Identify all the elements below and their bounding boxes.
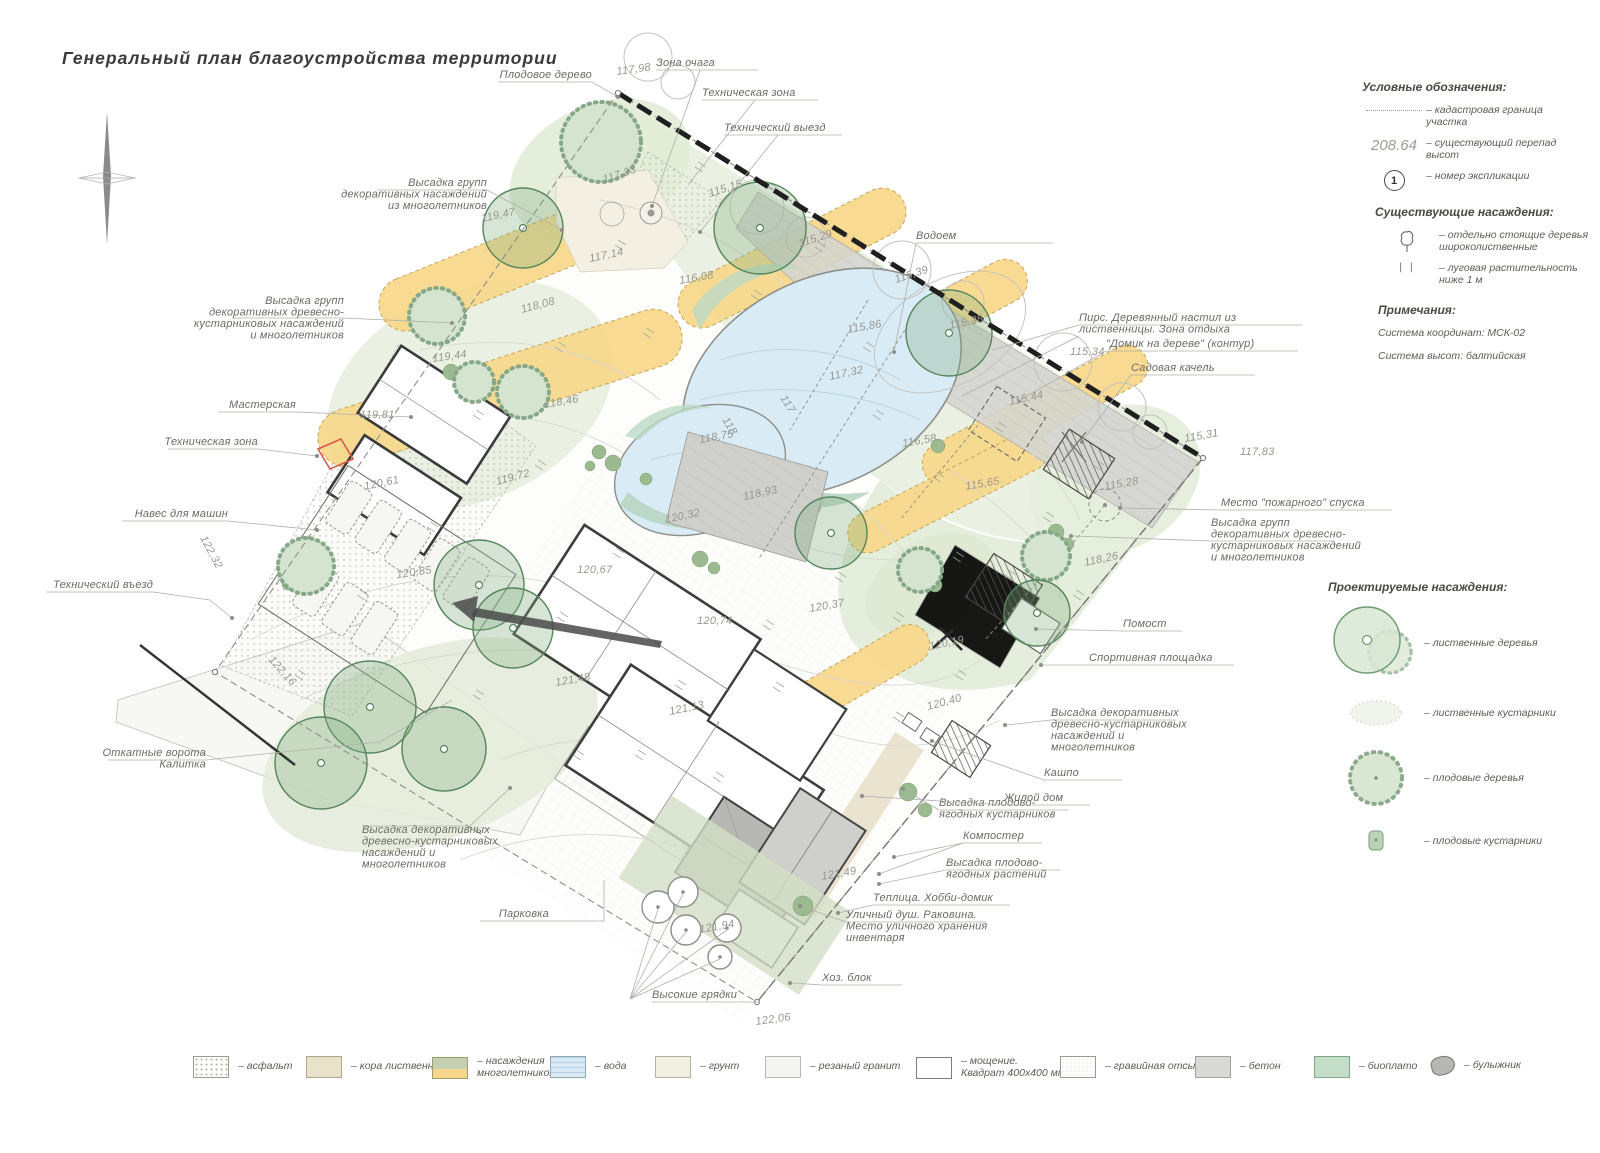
elevation-mark: 117,83	[1240, 446, 1275, 458]
material-swatch-concrete	[1195, 1056, 1231, 1078]
material-label-concrete: – бетон	[1240, 1061, 1281, 1073]
material-swatch-soil	[655, 1056, 691, 1078]
projected-item-1: – лиственные кустарники	[1328, 696, 1593, 730]
annotation-text: Высадка декоративныхдревесно-кустарников…	[362, 824, 498, 871]
existing-item-0: – отдельно стоящие деревья широколиствен…	[1375, 229, 1600, 253]
annotation-text: Плодовое дерево	[500, 69, 592, 81]
elevation-mark: 120,67	[577, 564, 613, 576]
material-item-water: – вода	[550, 1056, 627, 1078]
plan-annotation: Навес для машин	[122, 508, 319, 532]
annotation-text: Парковка	[499, 908, 549, 920]
elevation-mark: 119,81	[360, 409, 395, 421]
material-label-paving: – мощение. Квадрат 400х400 мм	[961, 1056, 1065, 1079]
annotation-text: Теплица. Хобби-домик	[873, 892, 994, 904]
annotation-text: Спортивная площадка	[1089, 652, 1213, 664]
convention-item-1: 208.64– существующий перепад высот	[1362, 137, 1594, 161]
convention-item-0: – кадастровая граница участка	[1362, 104, 1594, 128]
material-label-soil: – грунт	[700, 1061, 739, 1073]
legend-notes: Примечания: Система координат: МСК-02Сис…	[1378, 303, 1588, 373]
material-swatch-granite	[765, 1056, 801, 1078]
material-swatch-perennials	[432, 1057, 468, 1079]
annotation-text: Высокие грядки	[652, 989, 737, 1001]
material-item-boulder: – булыжник	[1431, 1056, 1521, 1075]
material-item-bioplato: – биоплато	[1314, 1056, 1417, 1078]
tree-outline-icon	[1398, 229, 1416, 253]
plan-annotation: Технический въезд	[46, 579, 234, 620]
legend-notes-lines: Система координат: МСК-02Система высот: …	[1378, 327, 1588, 362]
deciduous-shrub-icon	[1345, 696, 1407, 730]
material-swatch-bark	[306, 1056, 342, 1078]
legend-projected-items: – лиственные деревья– лиственные кустарн…	[1328, 604, 1593, 856]
annotation-text: Пирс. Деревянный настил излиственницы. З…	[1078, 312, 1236, 336]
page-title: Генеральный план благоустройства террито…	[62, 48, 558, 69]
material-item-paving: – мощение. Квадрат 400х400 мм	[916, 1056, 1065, 1079]
material-swatch-water	[550, 1056, 586, 1078]
plan-annotation: Высадка декоративныхдревесно-кустарников…	[1003, 707, 1187, 754]
convention-item-1-label: – существующий перепад высот	[1426, 137, 1556, 161]
annotation-text: Техническая зона	[164, 436, 258, 448]
material-label-perennials: – насаждения многолетников	[477, 1056, 555, 1079]
annotation-text: Кашпо	[1044, 767, 1079, 779]
material-item-asphalt: – асфальт	[193, 1056, 293, 1078]
projected-item-3: – плодовые кустарники	[1328, 826, 1593, 856]
annotation-text: Высадка плодово-ягодных растений	[945, 857, 1047, 881]
material-item-perennials: – насаждения многолетников	[432, 1056, 555, 1079]
annotation-text: Высадка декоративныхдревесно-кустарников…	[1051, 707, 1187, 754]
site-plan-canvas: Плодовое деревоЗона очагаТехническая зон…	[0, 0, 1600, 1153]
north-arrow-icon	[78, 112, 136, 244]
explication-number-icon: 1	[1384, 170, 1405, 191]
meadow-bars-icon: | |	[1399, 262, 1415, 273]
projected-item-2: – плодовые деревья	[1328, 744, 1593, 812]
annotation-text: Зона очага	[656, 57, 715, 69]
projected-item-0-label: – лиственные деревья	[1424, 637, 1538, 649]
elevation-sample: 208.64	[1371, 137, 1417, 154]
annotation-text: Технический выезд	[724, 122, 826, 134]
material-item-soil: – грунт	[655, 1056, 739, 1078]
material-item-concrete: – бетон	[1195, 1056, 1281, 1078]
legend-existing: Существующие насаждения: – отдельно стоя…	[1375, 205, 1600, 295]
annotation-text: Садовая качель	[1131, 362, 1215, 374]
annotation-text: Хоз. блок	[821, 972, 872, 984]
annotation-text: Откатные воротаКалитка	[102, 747, 206, 771]
plan-annotation: Техническая зона	[164, 436, 319, 458]
legend-existing-items: – отдельно стоящие деревья широколиствен…	[1375, 229, 1600, 286]
annotation-text: Высадка группдекоративных древесно-куста…	[1211, 517, 1361, 564]
annotation-text: Техническая зона	[702, 87, 796, 99]
legend-notes-heading: Примечания:	[1378, 303, 1588, 317]
deciduous-tree-icon	[1330, 604, 1422, 682]
site-plan-sheet: Плодовое деревоЗона очагаТехническая зон…	[0, 0, 1600, 1153]
elevation-mark: 122,06	[755, 1011, 792, 1028]
annotation-text: "Домик на дереве" (контур)	[1106, 338, 1254, 350]
material-swatch-boulder	[1429, 1053, 1457, 1078]
existing-item-0-label: – отдельно стоящие деревья широколиствен…	[1439, 229, 1588, 253]
elevation-mark: 122,32	[197, 534, 224, 571]
material-label-granite: – резаный гранит	[810, 1061, 900, 1073]
projected-item-1-label: – лиственные кустарники	[1424, 707, 1556, 719]
plan-annotation: Высадка плодово-ягодных растений	[877, 857, 1060, 886]
legend-conventions-items: – кадастровая граница участка208.64– сущ…	[1362, 104, 1594, 191]
fruit-tree-icon	[1340, 744, 1412, 812]
annotation-text: Водоем	[916, 230, 957, 242]
material-label-boulder: – булыжник	[1464, 1060, 1521, 1072]
projected-item-3-label: – плодовые кустарники	[1424, 835, 1542, 847]
elevation-mark: 115,34	[1070, 346, 1105, 358]
material-label-bioplato: – биоплато	[1359, 1061, 1417, 1073]
material-swatch-bioplato	[1314, 1056, 1350, 1078]
annotation-text: Компостер	[963, 830, 1024, 842]
legend-existing-heading: Существующие насаждения:	[1375, 205, 1600, 219]
material-swatch-gravel	[1060, 1056, 1096, 1078]
material-item-gravel: – гравийная отсыпка	[1060, 1056, 1212, 1078]
fruit-shrub-icon	[1363, 826, 1389, 856]
plan-annotation: Спортивная площадка	[1039, 652, 1234, 667]
material-label-asphalt: – асфальт	[238, 1061, 293, 1073]
convention-item-0-label: – кадастровая граница участка	[1426, 104, 1543, 128]
note-line-1: Система высот: балтийская	[1378, 350, 1588, 362]
annotation-text: Технический въезд	[53, 579, 153, 591]
material-swatch-paving	[916, 1057, 952, 1079]
legend-projected: Проектируемые насаждения: – лиственные д…	[1328, 580, 1593, 870]
legend-projected-heading: Проектируемые насаждения:	[1328, 580, 1593, 594]
plan-annotation: Плодовое дерево	[498, 69, 620, 99]
cadastral-line-icon	[1366, 110, 1422, 111]
material-swatch-asphalt	[193, 1056, 229, 1078]
projected-item-2-label: – плодовые деревья	[1424, 772, 1524, 784]
legend-conventions: Условные обозначения: – кадастровая гран…	[1362, 80, 1594, 200]
note-line-0: Система координат: МСК-02	[1378, 327, 1588, 339]
annotation-text: Жилой дом	[1003, 792, 1063, 804]
existing-item-1-label: – луговая растительность ниже 1 м	[1439, 262, 1578, 286]
annotation-text: Уличный душ. Раковина.Место уличного хра…	[845, 909, 987, 944]
annotation-text: Высадка группдекоративных насажденийиз м…	[341, 177, 487, 212]
annotation-text: Высадка группдекоративных древесно-куста…	[194, 295, 344, 342]
annotation-text: Мастерская	[229, 399, 296, 411]
convention-item-2-label: – номер экспликации	[1426, 170, 1529, 182]
existing-item-1: | |– луговая растительность ниже 1 м	[1375, 262, 1600, 286]
annotation-text: Навес для машин	[135, 508, 228, 520]
convention-item-2: 1– номер экспликации	[1362, 170, 1594, 191]
material-label-water: – вода	[595, 1061, 627, 1073]
annotation-text: Помост	[1123, 618, 1167, 630]
elevation-mark: 120,74	[697, 615, 732, 627]
legend-conventions-heading: Условные обозначения:	[1362, 80, 1594, 94]
projected-item-0: – лиственные деревья	[1328, 604, 1593, 682]
material-item-granite: – резаный гранит	[765, 1056, 900, 1078]
annotation-text: Место "пожарного" спуска	[1221, 497, 1365, 509]
elevation-mark: 117,98	[616, 61, 653, 78]
